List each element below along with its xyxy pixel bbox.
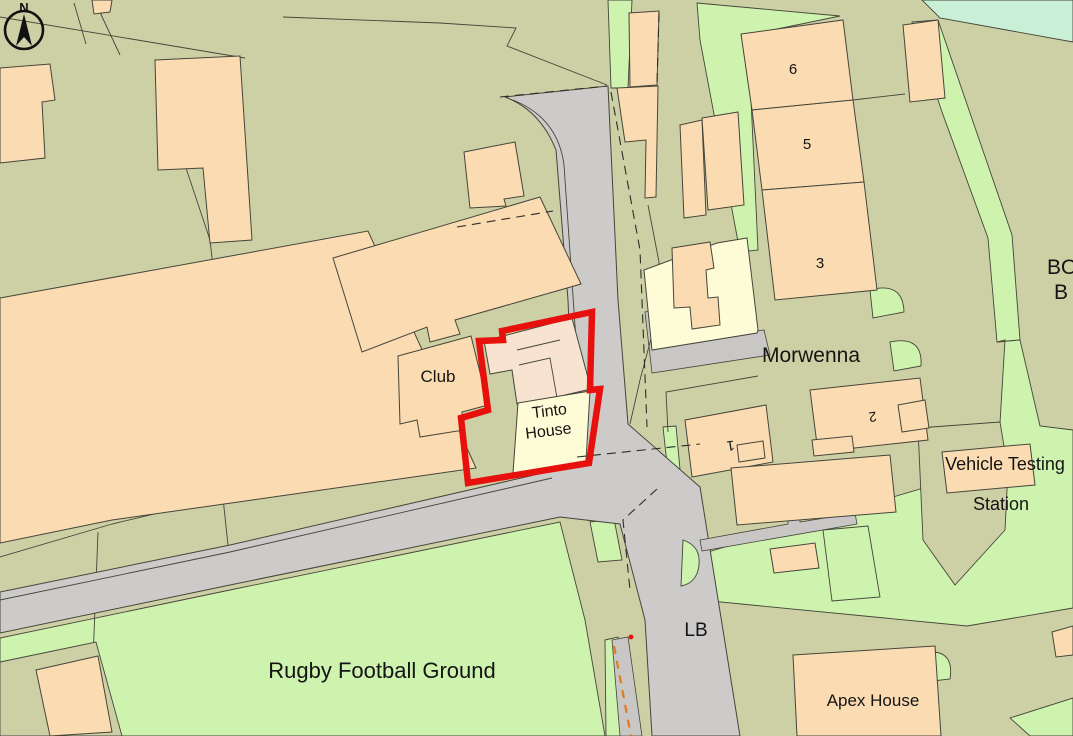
- label-station: Station: [973, 494, 1029, 514]
- building-footprint: [702, 112, 744, 210]
- building-footprint: [36, 656, 112, 736]
- map-viewport: N Club Tinto House Morwenna 6 5 3 2 1 Ve…: [0, 0, 1073, 736]
- label-edge-text-2: B: [1054, 281, 1068, 304]
- label-apex-house: Apex House: [827, 691, 920, 710]
- label-morwenna: Morwenna: [762, 344, 860, 367]
- label-unit-3: 3: [816, 255, 824, 272]
- label-club: Club: [421, 367, 456, 386]
- building-footprint: [680, 120, 706, 218]
- label-lb: LB: [684, 620, 707, 641]
- north-label: N: [19, 0, 28, 15]
- building-footprint: [737, 441, 765, 462]
- building-footprint: [812, 436, 854, 456]
- red-marker-dot: [629, 635, 634, 640]
- label-unit-5: 5: [803, 136, 811, 153]
- label-vehicle-testing: Vehicle Testing: [945, 454, 1065, 474]
- building-unit-3: [762, 182, 877, 300]
- building-footprint: [92, 0, 112, 14]
- building-footprint: [903, 20, 945, 102]
- label-unit-6: 6: [789, 61, 797, 78]
- label-edge-text-1: BO: [1047, 256, 1073, 279]
- building-footprint-long: [731, 455, 896, 525]
- building-footprint: [1052, 626, 1073, 657]
- green-strip-road-top: [608, 0, 632, 88]
- map-canvas[interactable]: N Club Tinto House Morwenna 6 5 3 2 1 Ve…: [0, 0, 1073, 736]
- building-footprint: [629, 11, 659, 87]
- building-footprint: [898, 400, 929, 432]
- label-rugby-ground: Rugby Football Ground: [268, 658, 495, 683]
